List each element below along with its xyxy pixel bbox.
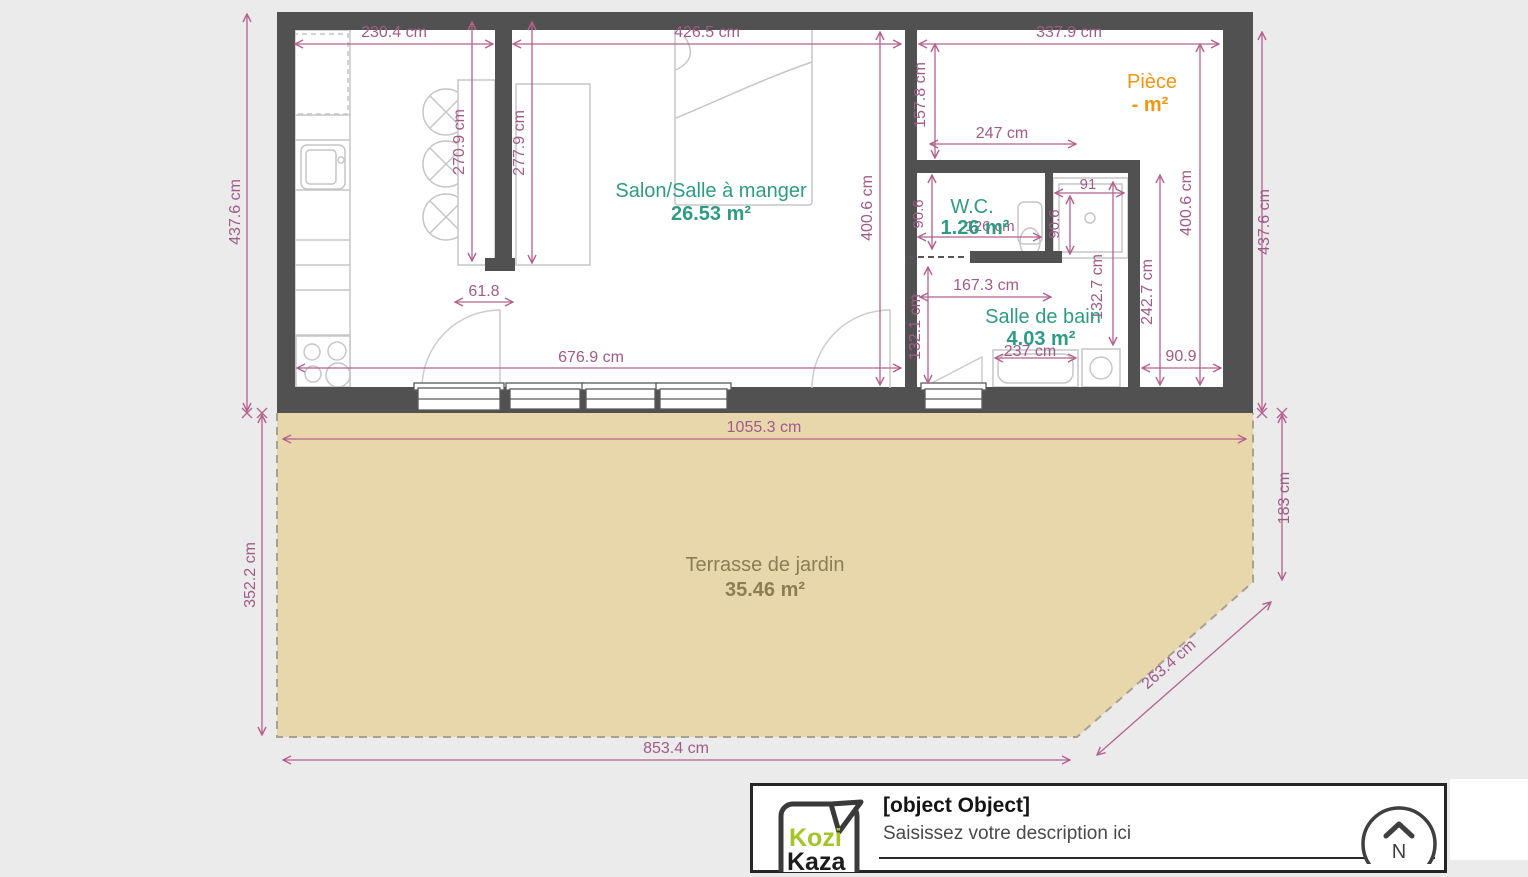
terrasse-name: Terrasse de jardin bbox=[686, 554, 845, 576]
logo-text-kaza: Kaza bbox=[787, 848, 846, 872]
description-underline bbox=[879, 857, 1435, 859]
wc-area: 1.26 m² bbox=[941, 217, 1010, 239]
dim-label-sdb-width: 167.3 cm bbox=[953, 277, 1019, 294]
dim-label-corridor-height: 242.7 cm bbox=[1139, 259, 1156, 325]
footer-right-margin bbox=[1450, 779, 1528, 860]
dim-label-terrace-bottom: 853.4 cm bbox=[643, 740, 709, 757]
description-field[interactable]: Saisissez votre description ici bbox=[883, 823, 1131, 845]
dim-label-bar-width: 61.8 bbox=[468, 283, 499, 300]
dim-label-bar-right: 277.9 cm bbox=[511, 110, 528, 176]
dim-label-right-terrace: 183 cm bbox=[1276, 472, 1293, 524]
wc-name: W.C. bbox=[950, 196, 993, 218]
piece-name: Pièce bbox=[1127, 71, 1177, 93]
salle-de-bain-name: Salle de bain bbox=[985, 306, 1101, 328]
dim-label-sdb-left-height: 132.1 cm bbox=[907, 294, 924, 360]
bed bbox=[675, 28, 812, 205]
floor-plan: 230.4 cm 426.5 cm 337.9 cm 437.6 cm 352.… bbox=[0, 0, 1528, 860]
dim-label-shower-height: 90.6 bbox=[1046, 209, 1063, 238]
dim-label-piece-width: 247 cm bbox=[976, 125, 1028, 142]
terrasse-area: 35.46 m² bbox=[725, 579, 805, 601]
kozikaza-logo: Kozi Kaza bbox=[773, 792, 868, 872]
dim-label-left-terrace: 352.2 cm bbox=[242, 542, 259, 608]
dim-label-right-outer: 437.6 cm bbox=[1256, 189, 1273, 255]
salon-area: 26.53 m² bbox=[671, 203, 751, 225]
piece-area: - m² bbox=[1132, 94, 1169, 116]
dim-label-piece-height: 157.8 cm bbox=[912, 62, 929, 128]
dim-label-wc-height: 90.6 bbox=[910, 199, 927, 228]
dim-label-left-outer: 437.6 cm bbox=[227, 179, 244, 245]
dim-label-salon-height: 400.6 cm bbox=[859, 175, 876, 241]
dim-label-bar-left: 270.9 cm bbox=[451, 109, 468, 175]
dim-label-corridor-width: 90.9 bbox=[1165, 348, 1196, 365]
compass-control[interactable]: N bbox=[1353, 794, 1445, 864]
plan-title: [object Object] bbox=[883, 794, 1030, 818]
salon-name: Salon/Salle à manger bbox=[615, 180, 807, 202]
dim-label-top-left: 230.4 cm bbox=[361, 24, 427, 41]
salle-de-bain-area: 4.03 m² bbox=[1007, 328, 1076, 350]
dim-label-shower-width: 91 bbox=[1080, 176, 1097, 193]
floor-plan-canvas: 230.4 cm 426.5 cm 337.9 cm 437.6 cm 352.… bbox=[0, 0, 1528, 860]
dim-label-terrace-top: 1055.3 cm bbox=[727, 419, 802, 436]
dim-label-top-right: 337.9 cm bbox=[1036, 24, 1102, 41]
dim-label-right-inner-height: 400.6 cm bbox=[1178, 170, 1195, 236]
dim-label-salon-width: 676.9 cm bbox=[558, 349, 624, 366]
dim-label-top-mid: 426.5 cm bbox=[674, 24, 740, 41]
